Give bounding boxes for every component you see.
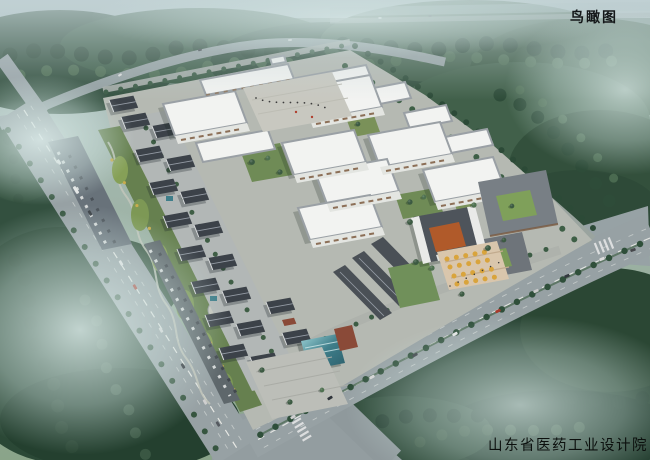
aerial-rendering: 鸟瞰图 山东省医药工业设计院 (0, 0, 650, 460)
teal-storefront (166, 196, 173, 201)
credit-label: 山东省医药工业设计院 (488, 437, 648, 454)
courtyard-building (478, 170, 558, 236)
aerial-rendering-canvas: 鸟瞰图 山东省医药工业设计院 (0, 0, 650, 460)
view-label: 鸟瞰图 (570, 9, 618, 26)
